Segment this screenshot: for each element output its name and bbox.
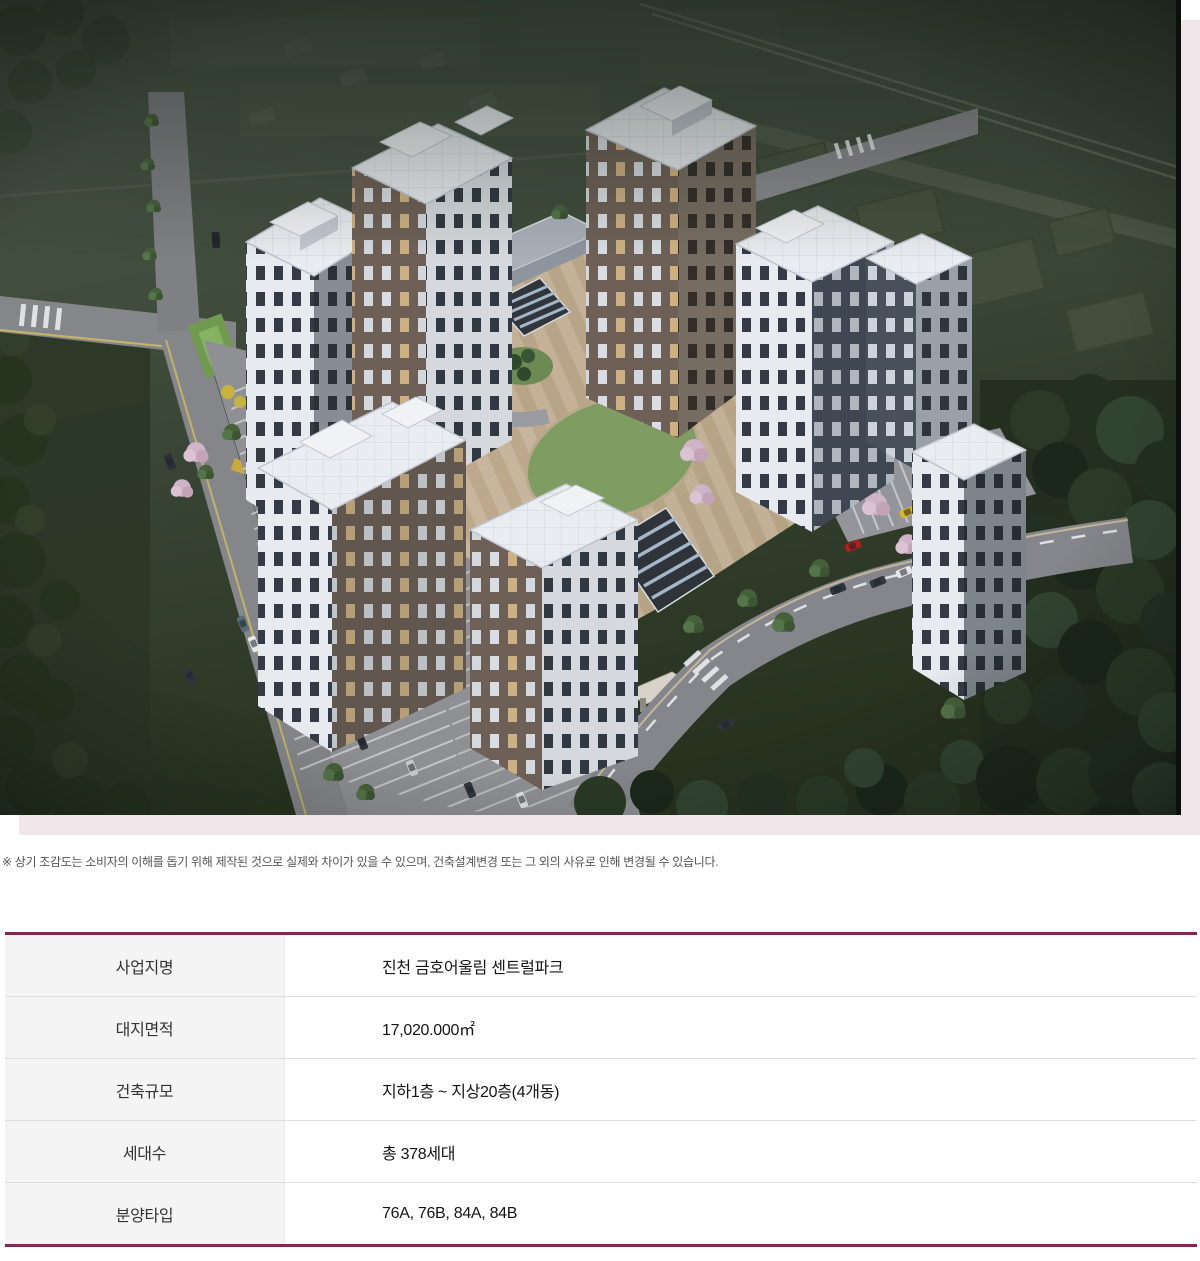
table-row-project-name: 사업지명 진천 금호어울림 센트럴파크 — [5, 935, 1197, 997]
table-row-building-scale: 건축규모 지하1층 ~ 지상20층(4개동) — [5, 1059, 1197, 1121]
vignette — [0, 0, 1181, 815]
row-value: 총 378세대 — [285, 1121, 1197, 1182]
row-value: 진천 금호어울림 센트럴파크 — [285, 935, 1197, 996]
right-edge-strip — [1176, 0, 1181, 815]
row-label: 대지면적 — [5, 997, 285, 1058]
row-label: 사업지명 — [5, 935, 285, 996]
row-value: 지하1층 ~ 지상20층(4개동) — [285, 1059, 1197, 1120]
table-row-households: 세대수 총 378세대 — [5, 1121, 1197, 1183]
promo-page: ※ 상기 조감도는 소비자의 이해를 돕기 위해 제작된 것으로 실제와 차이가… — [0, 0, 1200, 1261]
table-row-site-area: 대지면적 17,020.000㎡ — [5, 997, 1197, 1059]
hero-section — [0, 0, 1200, 835]
row-value: 17,020.000㎡ — [285, 997, 1197, 1058]
render-disclaimer-text: ※ 상기 조감도는 소비자의 이해를 돕기 위해 제작된 것으로 실제와 차이가… — [2, 854, 1200, 870]
row-label: 건축규모 — [5, 1059, 285, 1120]
project-info-table: 사업지명 진천 금호어울림 센트럴파크 대지면적 17,020.000㎡ 건축규… — [5, 932, 1197, 1247]
row-label: 세대수 — [5, 1121, 285, 1182]
row-value: 76A, 76B, 84A, 84B — [285, 1183, 1197, 1244]
aerial-render-illustration — [0, 0, 1181, 815]
table-row-unit-types: 분양타입 76A, 76B, 84A, 84B — [5, 1183, 1197, 1244]
row-label: 분양타입 — [5, 1183, 285, 1244]
